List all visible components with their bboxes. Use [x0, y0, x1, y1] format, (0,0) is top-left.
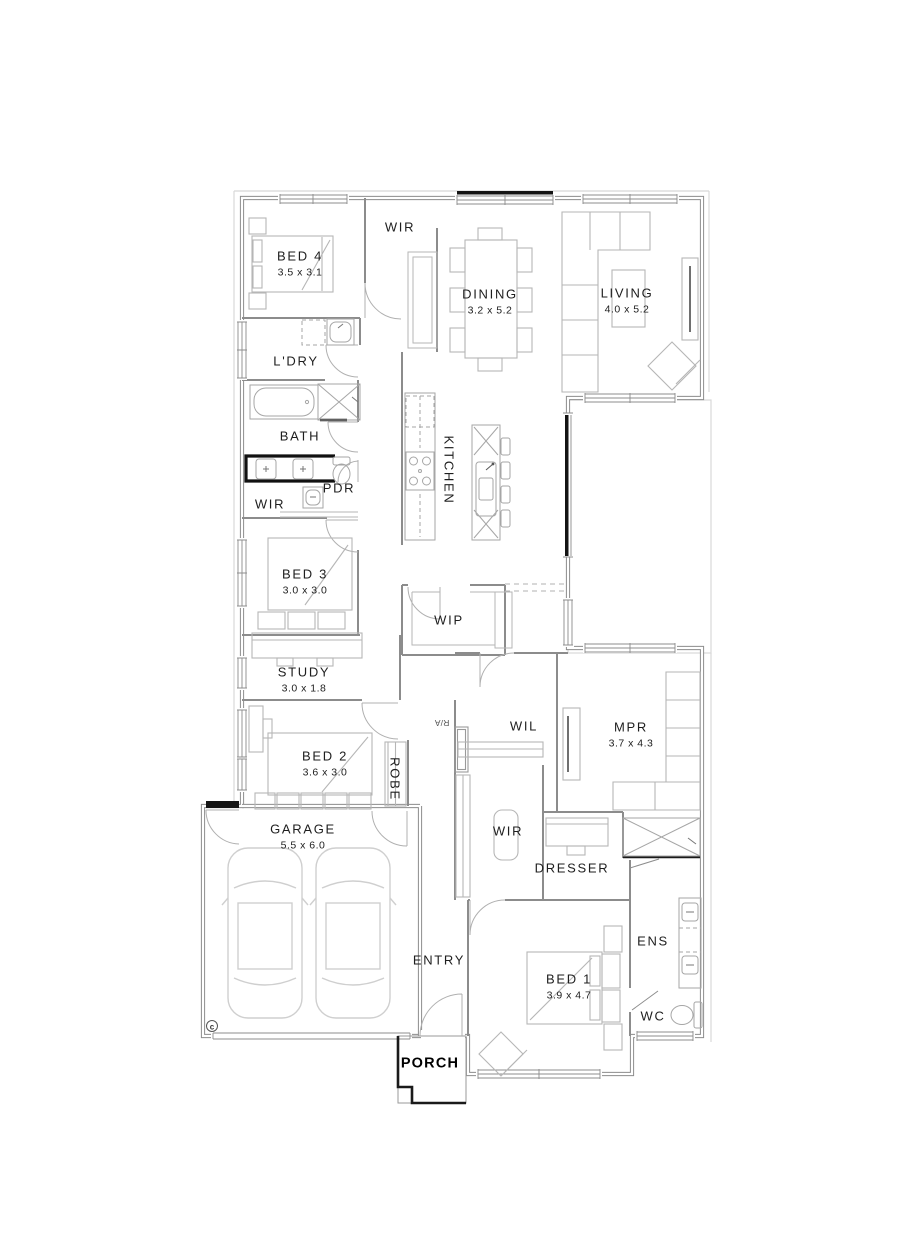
dining-window-lintel — [457, 191, 553, 195]
mpr-furniture — [563, 672, 700, 810]
floorplan-page: { "plan": { "copyright_mark": "c", "room… — [0, 0, 901, 1246]
bath-tub — [250, 385, 318, 419]
dark-highlights — [206, 191, 700, 857]
vanity-sinks — [256, 459, 313, 479]
garage-cars — [222, 848, 396, 1018]
cooktop — [406, 452, 434, 490]
car-left — [222, 848, 308, 1018]
svg-text:c: c — [210, 1023, 215, 1032]
bulkhead-dashed — [505, 584, 565, 591]
ottoman — [648, 342, 696, 390]
coffee-table — [612, 270, 645, 327]
wc-toilet — [671, 1002, 702, 1028]
car-right — [310, 848, 396, 1018]
copyright-mark: c — [207, 1021, 218, 1032]
bath-shower — [318, 384, 360, 420]
dining-furniture — [450, 228, 532, 371]
vanity-wall — [246, 456, 335, 481]
living-furniture — [562, 212, 700, 392]
wir-island — [494, 810, 518, 860]
sliding-door — [565, 415, 569, 556]
island-bench — [472, 425, 500, 540]
garage-door-lintel — [206, 801, 239, 808]
pdr-basin — [303, 487, 323, 508]
tv-unit — [682, 258, 698, 340]
dresser-bench — [546, 818, 608, 855]
island-stools — [501, 438, 510, 527]
ens-shower — [623, 818, 700, 856]
kitchen-fixtures — [405, 252, 565, 648]
top-closet-shelving — [408, 252, 437, 348]
wip-counter — [412, 592, 512, 648]
laundry-sink — [327, 319, 354, 345]
bed3-furniture — [258, 538, 352, 629]
ensuite-fixtures — [623, 818, 702, 1028]
bed2-furniture — [249, 706, 406, 809]
mpr-tv-unit — [563, 708, 580, 780]
bathroom-fixtures — [250, 319, 360, 517]
wir-shelf — [456, 775, 470, 897]
wir-hall-shelf — [280, 512, 358, 517]
ens-vanity — [679, 898, 701, 988]
floorplan-drawing: c — [0, 0, 901, 1246]
robe-shelving — [385, 742, 406, 806]
bed1-furniture — [479, 926, 622, 1076]
bed4-furniture — [249, 218, 333, 309]
wil-shelf — [458, 742, 543, 757]
study-furniture — [252, 633, 362, 666]
porch-slab — [398, 1036, 466, 1103]
laundry-counter — [302, 320, 325, 345]
